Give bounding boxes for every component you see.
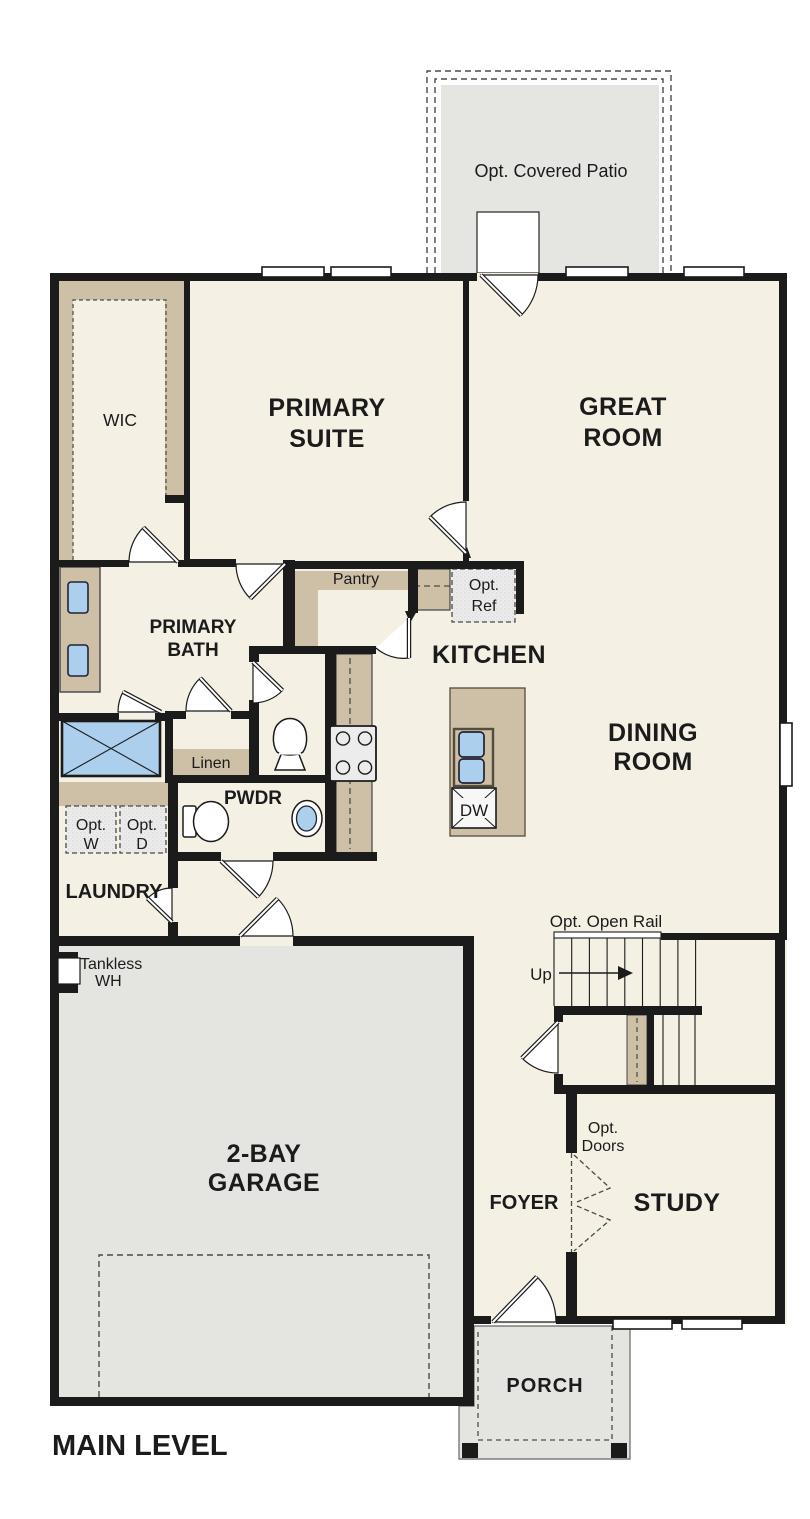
svg-text:ROOM: ROOM — [583, 424, 662, 452]
svg-text:GREAT: GREAT — [579, 393, 667, 421]
svg-text:PRIMARY: PRIMARY — [150, 617, 237, 638]
svg-text:W: W — [83, 836, 99, 853]
svg-text:BATH: BATH — [167, 640, 218, 661]
svg-text:SUITE: SUITE — [289, 425, 365, 453]
svg-text:WIC: WIC — [103, 410, 137, 430]
svg-text:DINING: DINING — [608, 719, 698, 747]
svg-text:Opt.: Opt. — [76, 817, 106, 834]
svg-text:Opt. Covered Patio: Opt. Covered Patio — [474, 161, 627, 181]
svg-text:MAIN LEVEL: MAIN LEVEL — [52, 1430, 228, 1462]
svg-text:Up: Up — [530, 965, 552, 984]
svg-text:Opt.: Opt. — [588, 1120, 618, 1137]
svg-text:ROOM: ROOM — [613, 748, 692, 776]
svg-text:Ref: Ref — [472, 598, 497, 615]
svg-text:Opt. Open Rail: Opt. Open Rail — [550, 912, 662, 931]
svg-text:FOYER: FOYER — [490, 1192, 559, 1214]
svg-text:Doors: Doors — [582, 1138, 625, 1155]
svg-text:PORCH: PORCH — [506, 1375, 583, 1397]
svg-text:STUDY: STUDY — [634, 1189, 721, 1217]
svg-text:D: D — [136, 836, 148, 853]
svg-text:PWDR: PWDR — [224, 788, 282, 809]
svg-text:DW: DW — [460, 801, 488, 820]
svg-text:Pantry: Pantry — [333, 571, 379, 588]
svg-text:Tankless: Tankless — [80, 956, 142, 973]
svg-text:LAUNDRY: LAUNDRY — [65, 881, 163, 903]
svg-text:2-BAY: 2-BAY — [227, 1140, 302, 1168]
svg-text:WH: WH — [95, 973, 122, 990]
svg-text:KITCHEN: KITCHEN — [432, 641, 546, 669]
svg-text:GARAGE: GARAGE — [208, 1169, 320, 1197]
svg-text:Linen: Linen — [191, 755, 230, 772]
svg-text:Opt.: Opt. — [469, 577, 499, 594]
svg-text:PRIMARY: PRIMARY — [268, 394, 385, 422]
svg-text:Opt.: Opt. — [127, 817, 157, 834]
